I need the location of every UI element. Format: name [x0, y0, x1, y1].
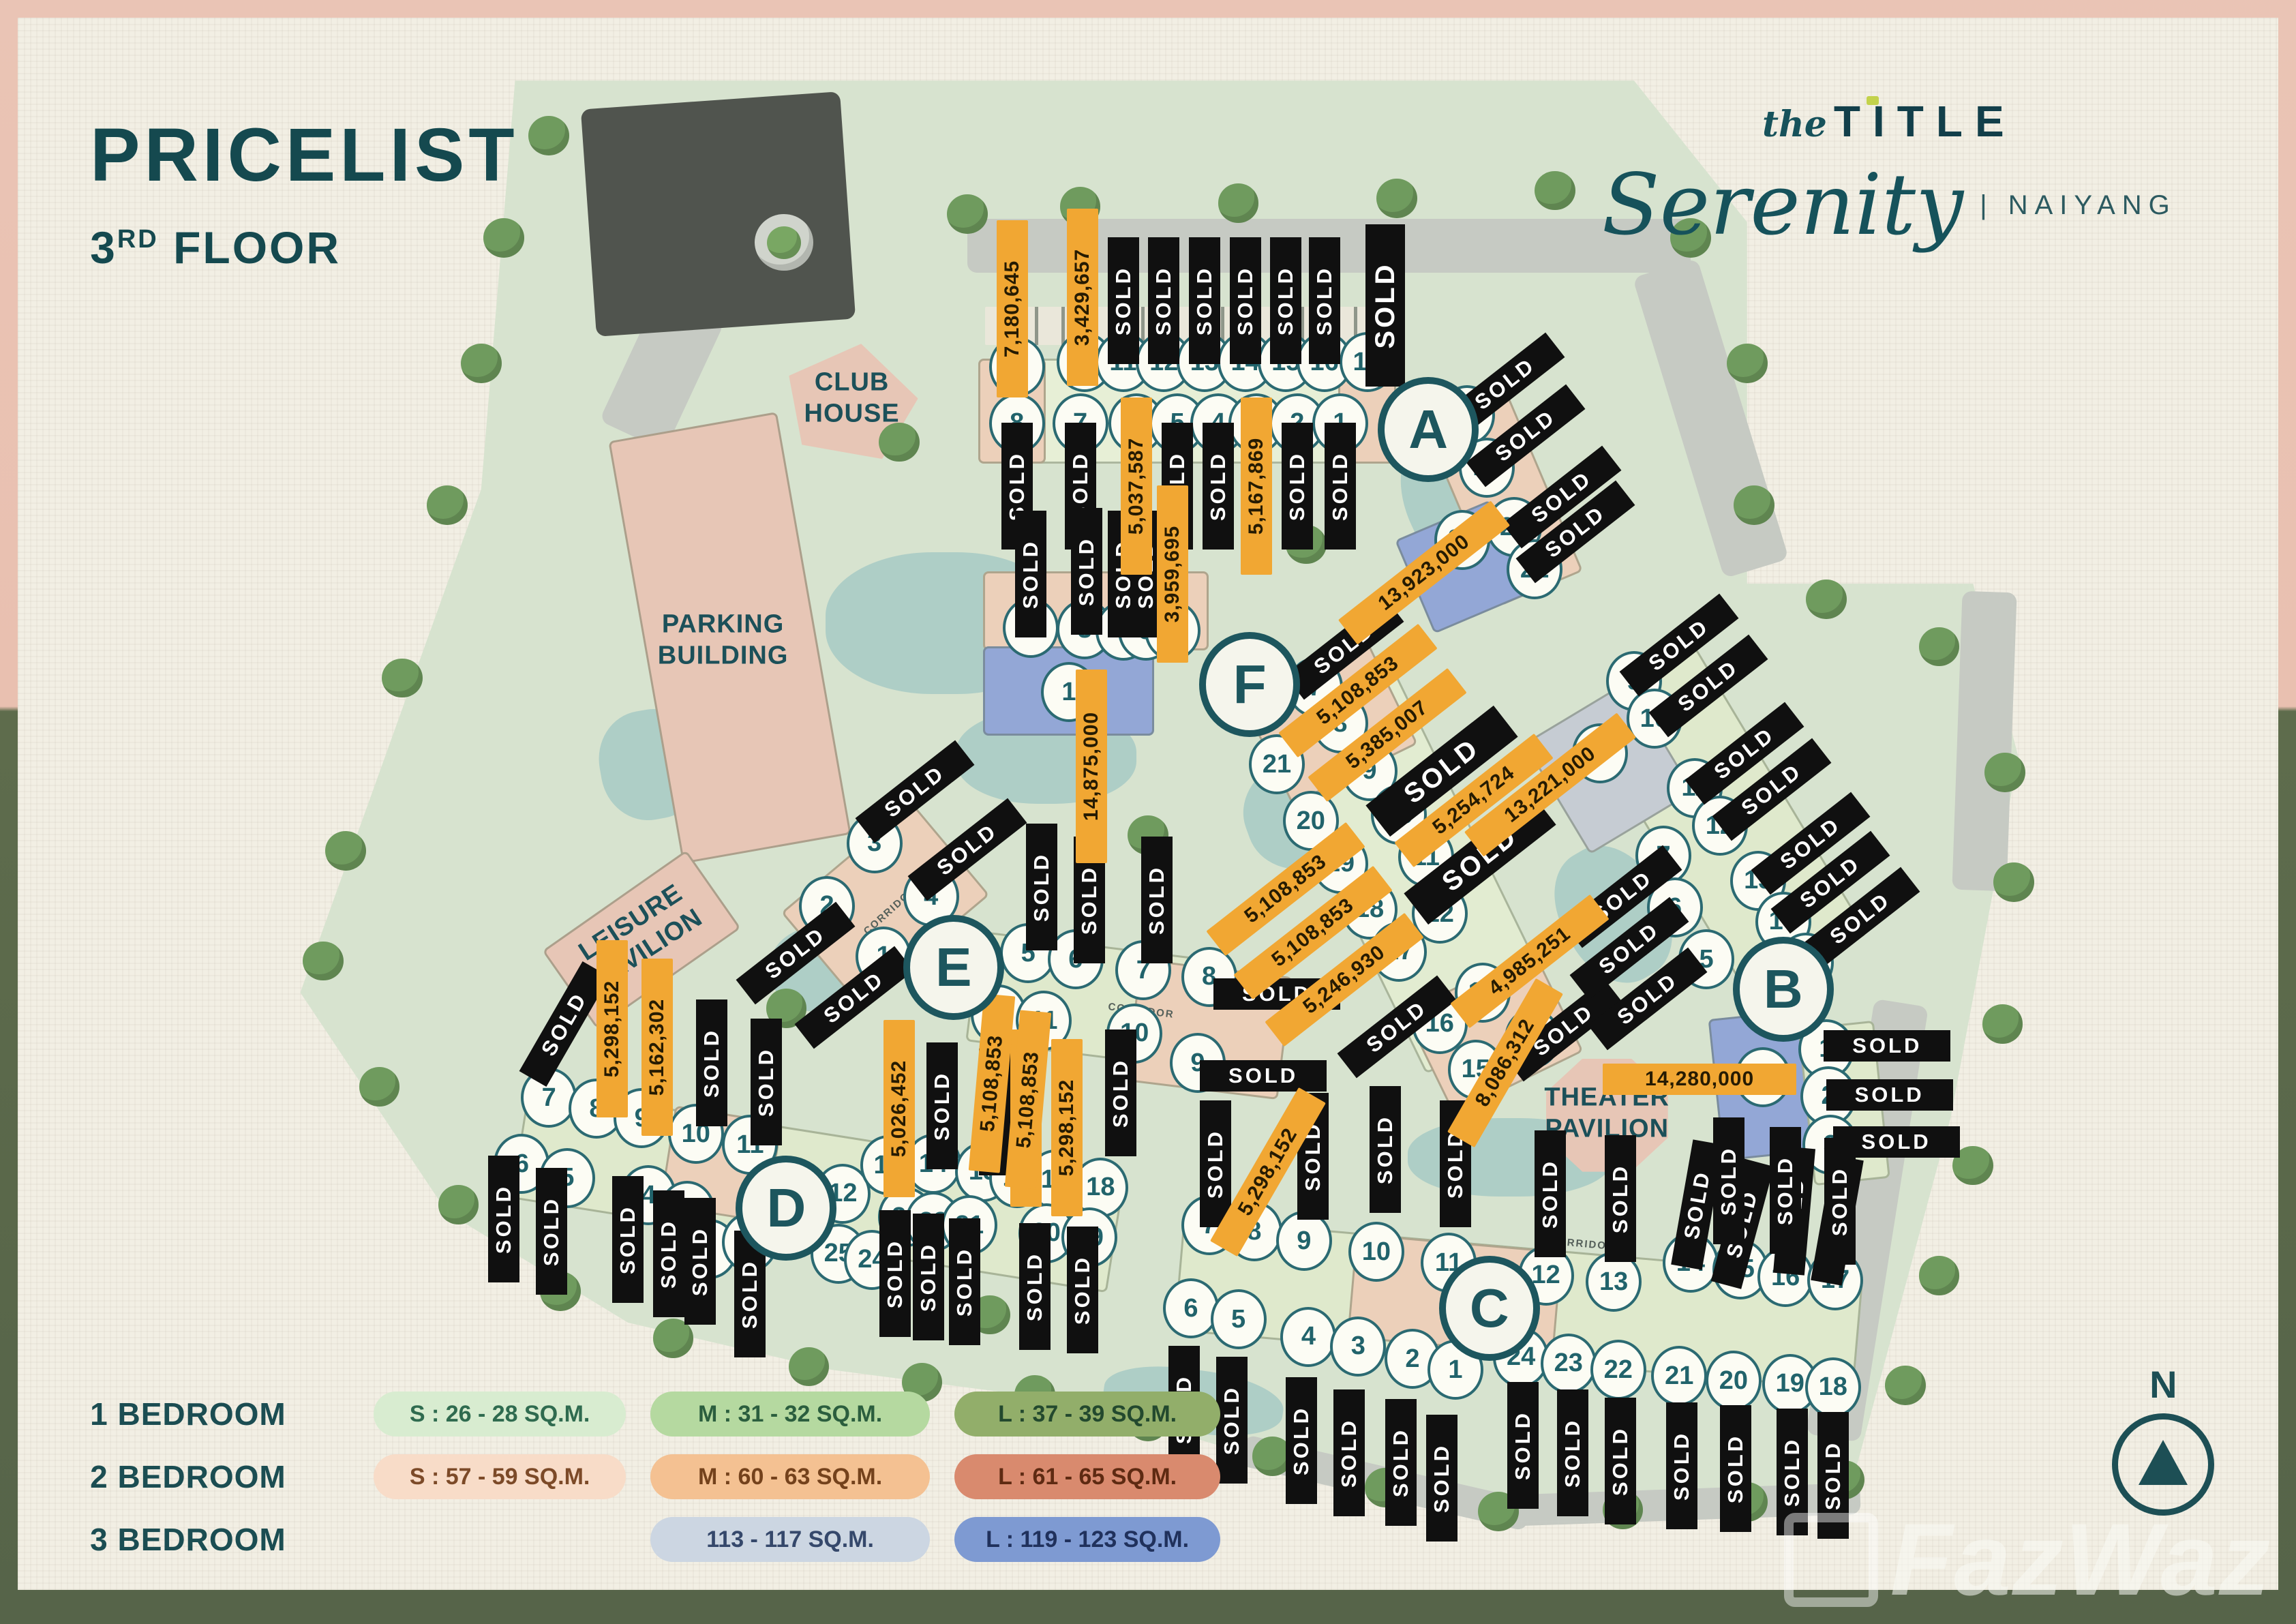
sold-tag: SOLD: [1507, 1382, 1539, 1509]
road-shape: [1952, 590, 2017, 891]
brand-name: TITLE: [1834, 97, 2016, 146]
price-tag: 5,167,869: [1241, 397, 1272, 575]
legend-size-pill: S : 26 - 28 SQ.M.: [374, 1392, 626, 1437]
sold-tag: SOLD: [1720, 1405, 1751, 1532]
watermark-text: FazWaz: [1890, 1501, 2271, 1619]
price-tag: 7,180,645: [997, 220, 1028, 397]
sold-tag: SOLD: [1426, 1415, 1457, 1542]
sold-tag: SOLD: [1015, 511, 1046, 637]
building-marker-b: B: [1733, 937, 1834, 1042]
sold-tag: SOLD: [1026, 824, 1057, 950]
compass-arrow-icon: [2139, 1440, 2188, 1485]
tree-shape: [1919, 1256, 1960, 1295]
unit-circle: 23: [1541, 1334, 1597, 1394]
tree-shape: [1376, 179, 1417, 218]
legend-size-pill: L : 61 - 65 SQ.M.: [954, 1454, 1220, 1499]
floor-number: 3: [90, 222, 117, 273]
tree-shape: [767, 226, 801, 259]
legend: 1 BEDROOMS : 26 - 28 SQ.M.M : 31 - 32 SQ…: [90, 1392, 1220, 1562]
price-tag: 3,959,695: [1157, 485, 1188, 663]
fazwaz-logo-icon: [1784, 1513, 1878, 1607]
sold-tag: SOLD: [1770, 1127, 1801, 1254]
unit-circle: 22: [1590, 1340, 1646, 1400]
tree-shape: [427, 485, 468, 525]
brand-logo: theTITLE Serenity | NAIYANG: [1602, 96, 2177, 254]
floor-word: FLOOR: [173, 222, 341, 273]
tree-shape: [1727, 344, 1768, 383]
tree-shape: [1218, 183, 1259, 223]
sold-tag: SOLD: [879, 1210, 911, 1337]
sold-tag: SOLD: [1666, 1402, 1697, 1529]
price-tag: 5,298,152: [1051, 1039, 1083, 1216]
price-tag: 5,037,587: [1121, 397, 1152, 575]
building-marker-a: A: [1378, 377, 1479, 482]
building-marker-d: D: [736, 1156, 836, 1261]
sold-tag: SOLD: [949, 1218, 980, 1345]
sold-tag: SOLD: [653, 1190, 684, 1317]
sold-tag: SOLD: [1286, 1377, 1317, 1504]
sold-tag: SOLD: [1071, 508, 1102, 635]
sold-tag: SOLD: [1189, 237, 1220, 364]
unit-circle: 20: [1706, 1351, 1762, 1411]
floor-text: 3RD FLOOR: [90, 222, 519, 273]
building-marker-e: E: [903, 915, 1004, 1020]
sold-tag: SOLD: [1824, 1030, 1950, 1062]
sold-tag: SOLD: [1203, 423, 1234, 550]
sold-tag: SOLD: [1309, 237, 1340, 364]
tree-shape: [382, 659, 423, 698]
unit-circle: 10: [1348, 1222, 1404, 1282]
sold-tag: SOLD: [1270, 237, 1301, 364]
sold-tag: SOLD: [1370, 1086, 1401, 1213]
sold-tag: SOLD: [1067, 1227, 1098, 1353]
brand-subtitle-line: Serenity | NAIYANG: [1602, 156, 2177, 254]
landmark-label: PARKING BUILDING: [658, 610, 789, 672]
tree-shape: [1982, 1004, 2023, 1044]
sold-tag: SOLD: [536, 1168, 567, 1295]
pricelist-page: CLUB HOUSEPARKING BUILDINGLEISURE PAVILI…: [0, 0, 2296, 1624]
unit-circle: 3: [1330, 1317, 1386, 1377]
sold-tag: SOLD: [684, 1198, 716, 1325]
sold-tag: SOLD: [1325, 423, 1356, 550]
legend-size-pill: L : 37 - 39 SQ.M.: [954, 1392, 1220, 1437]
tree-shape: [1734, 485, 1774, 525]
sold-tag: SOLD: [1826, 1079, 1953, 1111]
legend-size-pill: L : 119 - 123 SQ.M.: [954, 1517, 1220, 1562]
legend-size-pill: S : 57 - 59 SQ.M.: [374, 1454, 626, 1499]
tree-shape: [528, 116, 569, 155]
sold-tag: SOLD: [1713, 1117, 1744, 1244]
tree-shape: [303, 942, 344, 981]
brand-script: Serenity: [1602, 156, 1963, 254]
price-tag: 5,298,152: [596, 940, 628, 1117]
brand-the: the: [1762, 104, 1827, 145]
legend-size-pill: M : 60 - 63 SQ.M.: [650, 1454, 930, 1499]
unit-circle: 4: [1280, 1307, 1336, 1367]
tree-shape: [947, 194, 988, 234]
unit-circle: 6: [1163, 1278, 1219, 1338]
sold-tag: SOLD: [612, 1176, 644, 1303]
unit-circle: 5: [1211, 1289, 1267, 1349]
tree-shape: [789, 1347, 830, 1387]
sold-tag: SOLD: [1019, 1223, 1051, 1350]
sold-tag: SOLD: [1282, 423, 1313, 550]
sold-tag: SOLD: [1535, 1130, 1566, 1257]
landmark-label: CLUB HOUSE: [804, 367, 900, 429]
unit-circle: 21: [1651, 1346, 1707, 1406]
unit-circle: 18: [1805, 1357, 1861, 1417]
building-marker-c: C: [1439, 1256, 1540, 1361]
sold-tag: SOLD: [1105, 1029, 1136, 1156]
price-tag: 14,875,000: [1076, 670, 1107, 863]
price-tag: 3,429,657: [1067, 209, 1098, 386]
tree-shape: [359, 1067, 400, 1107]
legend-row-label: 3 BEDROOM: [90, 1517, 349, 1562]
price-tag: 5,162,302: [641, 959, 673, 1136]
sold-tag: SOLD: [1200, 1100, 1231, 1227]
legend-size-pill: M : 31 - 32 SQ.M.: [650, 1392, 930, 1437]
road-shape: [581, 91, 856, 337]
tree-shape: [438, 1185, 479, 1224]
sold-tag: SOLD: [1230, 237, 1261, 364]
tree-shape: [1885, 1366, 1926, 1405]
tree-shape: [1806, 580, 1847, 619]
brand-accent-dot-icon: [1867, 96, 1879, 105]
sold-tag: SOLD: [913, 1214, 944, 1340]
tree-shape: [1984, 753, 2025, 792]
brand-title-line: theTITLE: [1602, 96, 2177, 147]
sold-tag: SOLD: [1605, 1135, 1636, 1262]
legend-size-pill: 113 - 117 SQ.M.: [650, 1517, 930, 1562]
brand-location: | NAIYANG: [1980, 190, 2177, 221]
tree-shape: [325, 831, 366, 871]
sold-tag: SOLD: [1200, 1060, 1327, 1092]
compass: N: [2109, 1362, 2218, 1516]
sold-tag: SOLD: [1216, 1357, 1248, 1484]
unit-circle: 9: [1276, 1211, 1332, 1271]
tree-shape: [1535, 171, 1575, 211]
sold-tag: SOLD: [751, 1019, 782, 1145]
tree-shape: [461, 344, 502, 383]
sold-tag: SOLD: [1148, 237, 1179, 364]
legend-row-label: 1 BEDROOM: [90, 1392, 349, 1437]
cream-panel: CLUB HOUSEPARKING BUILDINGLEISURE PAVILI…: [18, 18, 2278, 1590]
floor-ordinal: RD: [117, 225, 159, 254]
watermark: FazWaz: [1784, 1501, 2271, 1619]
sold-tag: SOLD: [1365, 224, 1405, 387]
page-title: PRICELIST 3RD FLOOR: [90, 112, 519, 273]
compass-north-label: N: [2109, 1362, 2218, 1407]
sold-tag: SOLD: [1605, 1398, 1636, 1524]
legend-row-label: 2 BEDROOM: [90, 1454, 349, 1499]
tree-shape: [1993, 862, 2034, 902]
sold-tag: SOLD: [488, 1156, 519, 1282]
sold-tag: SOLD: [1333, 1389, 1365, 1516]
price-tag: 14,280,000: [1603, 1064, 1796, 1095]
title-text: PRICELIST: [90, 112, 519, 198]
price-tag: 5,026,452: [883, 1020, 915, 1197]
sold-tag: SOLD: [1824, 1138, 1856, 1265]
sold-tag: SOLD: [926, 1042, 958, 1169]
sold-tag: SOLD: [696, 999, 727, 1126]
sold-tag: SOLD: [1108, 237, 1139, 364]
sold-tag: SOLD: [1557, 1389, 1588, 1516]
building-marker-f: F: [1199, 632, 1300, 737]
sold-tag: SOLD: [1141, 837, 1173, 963]
sold-tag: SOLD: [1385, 1399, 1417, 1526]
